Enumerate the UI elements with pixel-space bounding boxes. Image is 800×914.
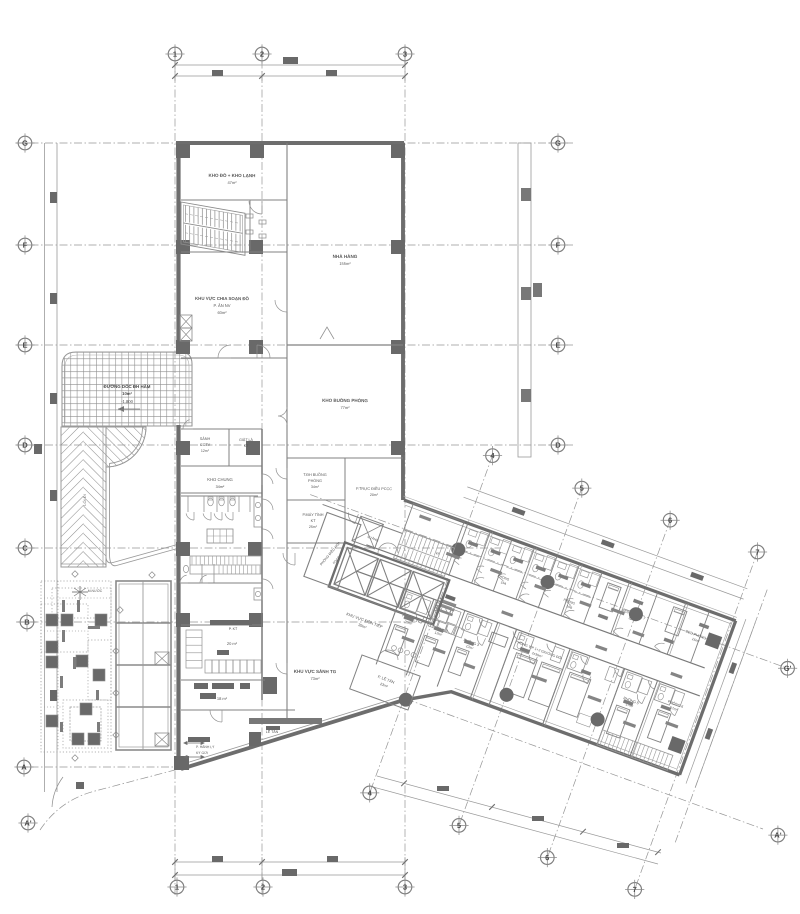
svg-text:KHO CHUNG: KHO CHUNG: [207, 477, 233, 482]
svg-text:P.MÁY TÍNH: P.MÁY TÍNH: [302, 513, 323, 517]
svg-text:M.NƯỚC: M.NƯỚC: [88, 588, 103, 593]
svg-text:A': A': [774, 831, 781, 840]
svg-text:SẢNH: SẢNH: [200, 436, 211, 441]
svg-text:F: F: [23, 241, 28, 250]
svg-text:5: 5: [457, 821, 461, 830]
svg-text:PHÒNG: PHÒNG: [308, 478, 322, 483]
svg-text:T.ĐH BUỒNG: T.ĐH BUỒNG: [303, 472, 326, 477]
svg-text:E: E: [22, 341, 27, 350]
svg-text:KHU VỰC SẢNH TG: KHU VỰC SẢNH TG: [294, 668, 337, 674]
svg-text:1: 1: [173, 50, 177, 59]
svg-text:2: 2: [260, 50, 264, 59]
svg-text:GIẶT LÀ: GIẶT LÀ: [239, 438, 253, 442]
svg-text:C: C: [22, 544, 28, 553]
svg-text:P.TRỰC ĐIỀU PCCC: P.TRỰC ĐIỀU PCCC: [356, 486, 392, 491]
svg-text:25m²: 25m²: [309, 525, 318, 529]
svg-text:KHU VỰC CHIA SOẠN ĐỒ: KHU VỰC CHIA SOẠN ĐỒ: [195, 296, 250, 301]
svg-text:34m²: 34m²: [311, 485, 320, 489]
svg-text:P. KT: P. KT: [229, 627, 238, 631]
svg-text:6: 6: [668, 516, 672, 525]
svg-text:G: G: [555, 139, 561, 148]
svg-text:20 m²: 20 m²: [227, 641, 238, 646]
svg-text:KHO ĐỒ + KHO LẠNH: KHO ĐỒ + KHO LẠNH: [209, 172, 256, 178]
svg-text:G': G': [784, 664, 792, 673]
svg-text:-1.800: -1.800: [121, 399, 134, 404]
svg-text:F: F: [556, 241, 561, 250]
svg-text:NHÀ HÀNG: NHÀ HÀNG: [333, 253, 358, 259]
svg-text:18 m²: 18 m²: [217, 696, 228, 701]
svg-text:KT: KT: [311, 519, 317, 523]
svg-text:10m²: 10m²: [122, 391, 132, 396]
svg-text:3: 3: [403, 883, 407, 892]
svg-text:2: 2: [261, 883, 265, 892]
svg-text:P. ĂN NV: P. ĂN NV: [213, 303, 230, 308]
svg-text:P. HÀNH LÝ: P. HÀNH LÝ: [196, 745, 215, 749]
svg-text:E: E: [555, 341, 560, 350]
svg-text:CCTV: CCTV: [200, 443, 211, 447]
svg-text:D: D: [555, 441, 561, 450]
svg-text:73m²: 73m²: [310, 676, 320, 681]
svg-text:A: A: [21, 763, 27, 772]
svg-text:7: 7: [633, 885, 637, 894]
svg-text:3: 3: [403, 50, 407, 59]
svg-text:B: B: [24, 618, 30, 627]
svg-text:7: 7: [755, 548, 759, 557]
svg-text:G: G: [22, 139, 28, 148]
svg-text:77m²: 77m²: [340, 405, 350, 410]
svg-text:34m²: 34m²: [216, 485, 225, 489]
svg-text:ĐƯỜNG DỐC ĐH HẦM: ĐƯỜNG DỐC ĐH HẦM: [104, 384, 151, 389]
svg-text:A': A': [24, 819, 31, 828]
svg-text:LỐI ĐI: LỐI ĐI: [82, 494, 87, 506]
svg-text:D: D: [22, 441, 28, 450]
svg-text:20m²: 20m²: [370, 493, 379, 497]
svg-text:6: 6: [545, 853, 549, 862]
svg-text:12m²: 12m²: [201, 449, 210, 453]
svg-text:47m²: 47m²: [227, 180, 237, 185]
svg-text:KÝ GỬI: KÝ GỬI: [196, 750, 208, 755]
svg-text:155m²: 155m²: [339, 261, 351, 266]
svg-text:60m²: 60m²: [217, 310, 227, 315]
svg-text:1: 1: [175, 883, 179, 892]
svg-text:5: 5: [580, 484, 584, 493]
